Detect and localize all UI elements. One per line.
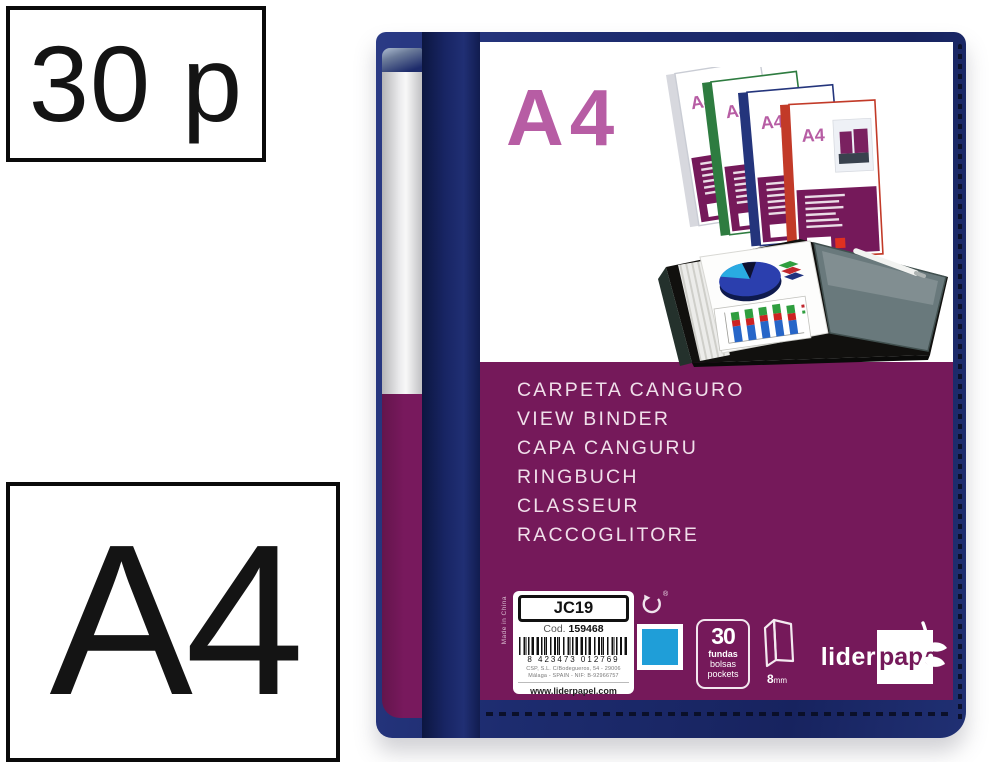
stitching-bottom [486,712,948,716]
manufacturer-address-line1: CSP, S.L. C/Bodegueros, 54 - 29006 [518,666,629,672]
color-swatch-blue [637,624,683,670]
product-label: JC19 Cod. 159468 8 423473 012769 CSP, S.… [513,591,634,694]
made-in-label: Made in China [501,596,508,644]
product-image: 30 p A4 A4 [0,0,1000,762]
model-code: JC19 [518,595,629,622]
spine-width-spec: 8mm [754,614,800,686]
binder-photo: A4 A4 [376,32,966,738]
product-name-pt: CAPA CANGURU [517,434,953,463]
format-badge: A4 [6,482,340,762]
spine-label-strip [382,72,422,394]
pockets-word-pt: bolsas [698,659,748,669]
pages-badge-text: 30 p [29,30,243,138]
product-name-fr: CLASSEUR [517,492,953,521]
barcode [519,637,628,655]
article-code: Cod. 159468 [518,624,629,635]
article-code-prefix: Cod. [543,623,565,635]
open-binder [658,239,948,367]
product-montage: A4 A4 [650,67,950,367]
pages-badge: 30 p [6,6,266,162]
brand-logo-box: pape l [877,630,933,684]
cover-format-title: A4 [506,78,620,158]
stitching-right [958,44,962,722]
mini-binder-red: A4 [780,100,883,259]
manufacturer-address-line2: Málaga - SPAIN - NIF: B-92966757 [518,673,629,679]
registered-mark: ® [663,591,668,598]
barcode-digits: 8 423473 012769 [518,656,629,664]
spine-width-icon [757,614,797,668]
product-name-it: RACCOGLITORE [517,521,953,550]
recycle-icon [641,593,663,615]
brand-logo-text-lider: lider [821,643,876,672]
product-name-es: CARPETA CANGURO [517,376,953,405]
product-name-de: RINGBUCH [517,463,953,492]
spine-fold [422,32,480,738]
product-name-en: VIEW BINDER [517,405,953,434]
leaf-icon [914,620,950,668]
website-url: www.liderpapel.com [518,682,629,696]
pockets-badge: 30 fundas bolsas pockets [696,619,750,689]
format-badge-text: A4 [50,512,297,727]
brand-logo: lider pape l [821,630,933,684]
spine-insert-sliver [382,394,422,718]
mini-binder-format-label: A4 [801,125,825,146]
spine-width-text: 8mm [754,674,800,686]
pockets-word-en: pockets [698,669,748,679]
article-code-value: 159468 [569,623,604,635]
montage-illustration: A4 A4 [650,67,950,367]
pockets-word-es: fundas [698,649,748,659]
cover-insert: A4 A4 [480,42,953,700]
pockets-count: 30 [698,624,748,648]
